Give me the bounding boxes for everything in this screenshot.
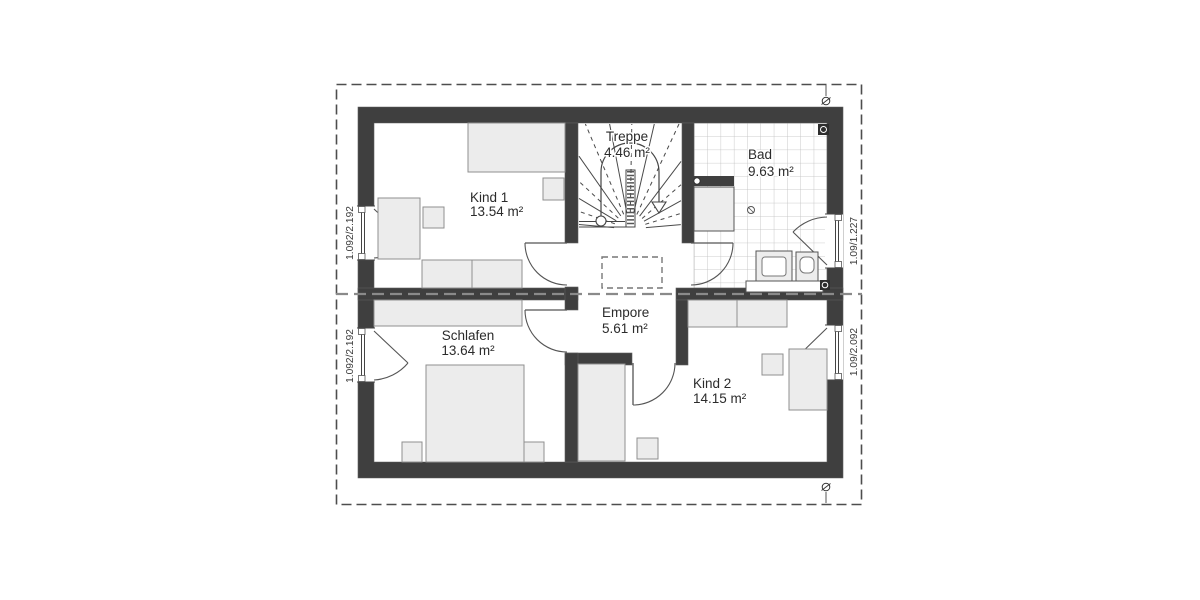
door-kind1 (525, 243, 567, 285)
shower-tray (694, 187, 734, 231)
toilet-bowl (800, 257, 814, 273)
door-kind2 (633, 363, 675, 405)
furniture-schlafen (374, 300, 544, 462)
room-label-bad-name: Bad (748, 147, 772, 162)
bed (468, 123, 565, 172)
wall-mid-cap (565, 287, 578, 310)
double-bed (426, 365, 524, 462)
dim-label-left-bottom: 1.092/2.192 (345, 329, 356, 383)
wall-kind1-east (565, 123, 578, 243)
empore-void-outline (602, 257, 662, 288)
corner-drain-bottom (820, 280, 830, 290)
chair (423, 207, 444, 228)
room-label-schlafen-area: 13.64 m² (441, 343, 495, 358)
floor-plan-canvas: Kind 1 13.54 m² Treppe 4.46 m² Bad 9.63 … (0, 0, 1200, 600)
stool (637, 438, 658, 459)
window-left-bottom (357, 328, 408, 382)
vanity-plinth (746, 281, 823, 292)
room-label-kind1-area: 13.54 m² (470, 204, 524, 219)
walkline-start-circle (596, 216, 606, 226)
wardrobe-tall (578, 364, 625, 461)
dim-label-left-top: 1.092/2.192 (345, 206, 356, 260)
shower-valve-icon (694, 178, 700, 184)
nightstand (543, 178, 564, 200)
room-label-bad-area: 9.63 m² (748, 164, 794, 179)
door-schlafen (525, 310, 567, 352)
floor-plan-svg: Kind 1 13.54 m² Treppe 4.46 m² Bad 9.63 … (0, 0, 1200, 600)
wall-schlafen-east (565, 353, 578, 462)
dim-label-right-top: 1.09/1.227 (849, 217, 860, 265)
room-label-kind2-area: 14.15 m² (693, 391, 747, 406)
room-label-empore-name: Empore (602, 305, 649, 320)
desk (378, 198, 420, 259)
room-label-treppe-name: Treppe (606, 129, 648, 144)
room-label-treppe-area: 4.46 m² (604, 145, 650, 160)
room-label-empore-area: 5.61 m² (602, 321, 648, 336)
nightstand-left (402, 442, 422, 462)
room-label-kind2-name: Kind 2 (693, 376, 731, 391)
room-label-kind1-name: Kind 1 (470, 190, 508, 205)
washbasin-bowl (762, 257, 786, 276)
downspout-bottom-right (822, 483, 831, 503)
chair (762, 354, 783, 375)
wardrobe (374, 300, 522, 326)
bed (789, 349, 827, 410)
room-label-schlafen-name: Schlafen (442, 328, 495, 343)
corner-drain-top (818, 124, 829, 135)
dim-label-right-bottom: 1.09/2.092 (849, 328, 860, 376)
nightstand-right (524, 442, 544, 462)
wall-empore-kind2 (676, 300, 688, 365)
downspout-top-right (822, 85, 831, 105)
